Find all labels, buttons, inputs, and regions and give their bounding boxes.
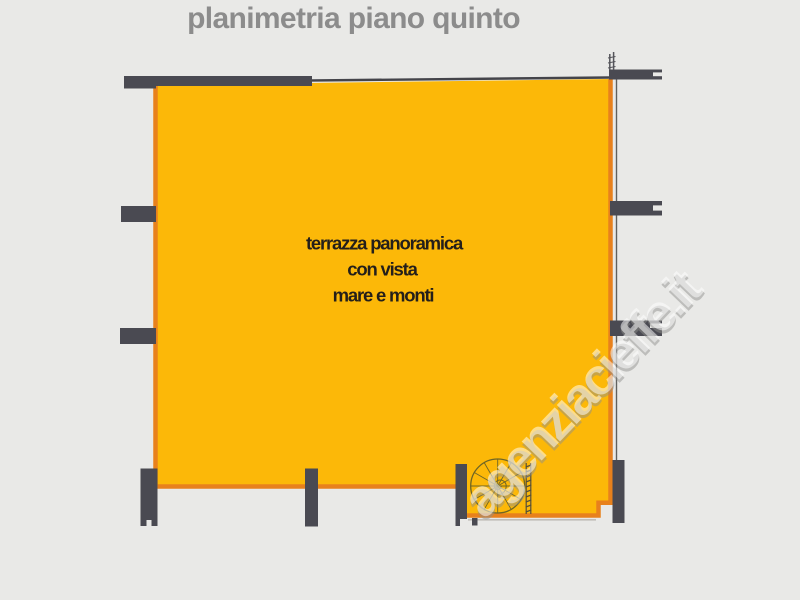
svg-text:planimetria piano quinto: planimetria piano quinto — [187, 2, 520, 35]
svg-text:con vista: con vista — [347, 259, 418, 280]
svg-text:terrazza panoramica: terrazza panoramica — [306, 233, 464, 254]
svg-text:mare e monti: mare e monti — [333, 285, 434, 306]
